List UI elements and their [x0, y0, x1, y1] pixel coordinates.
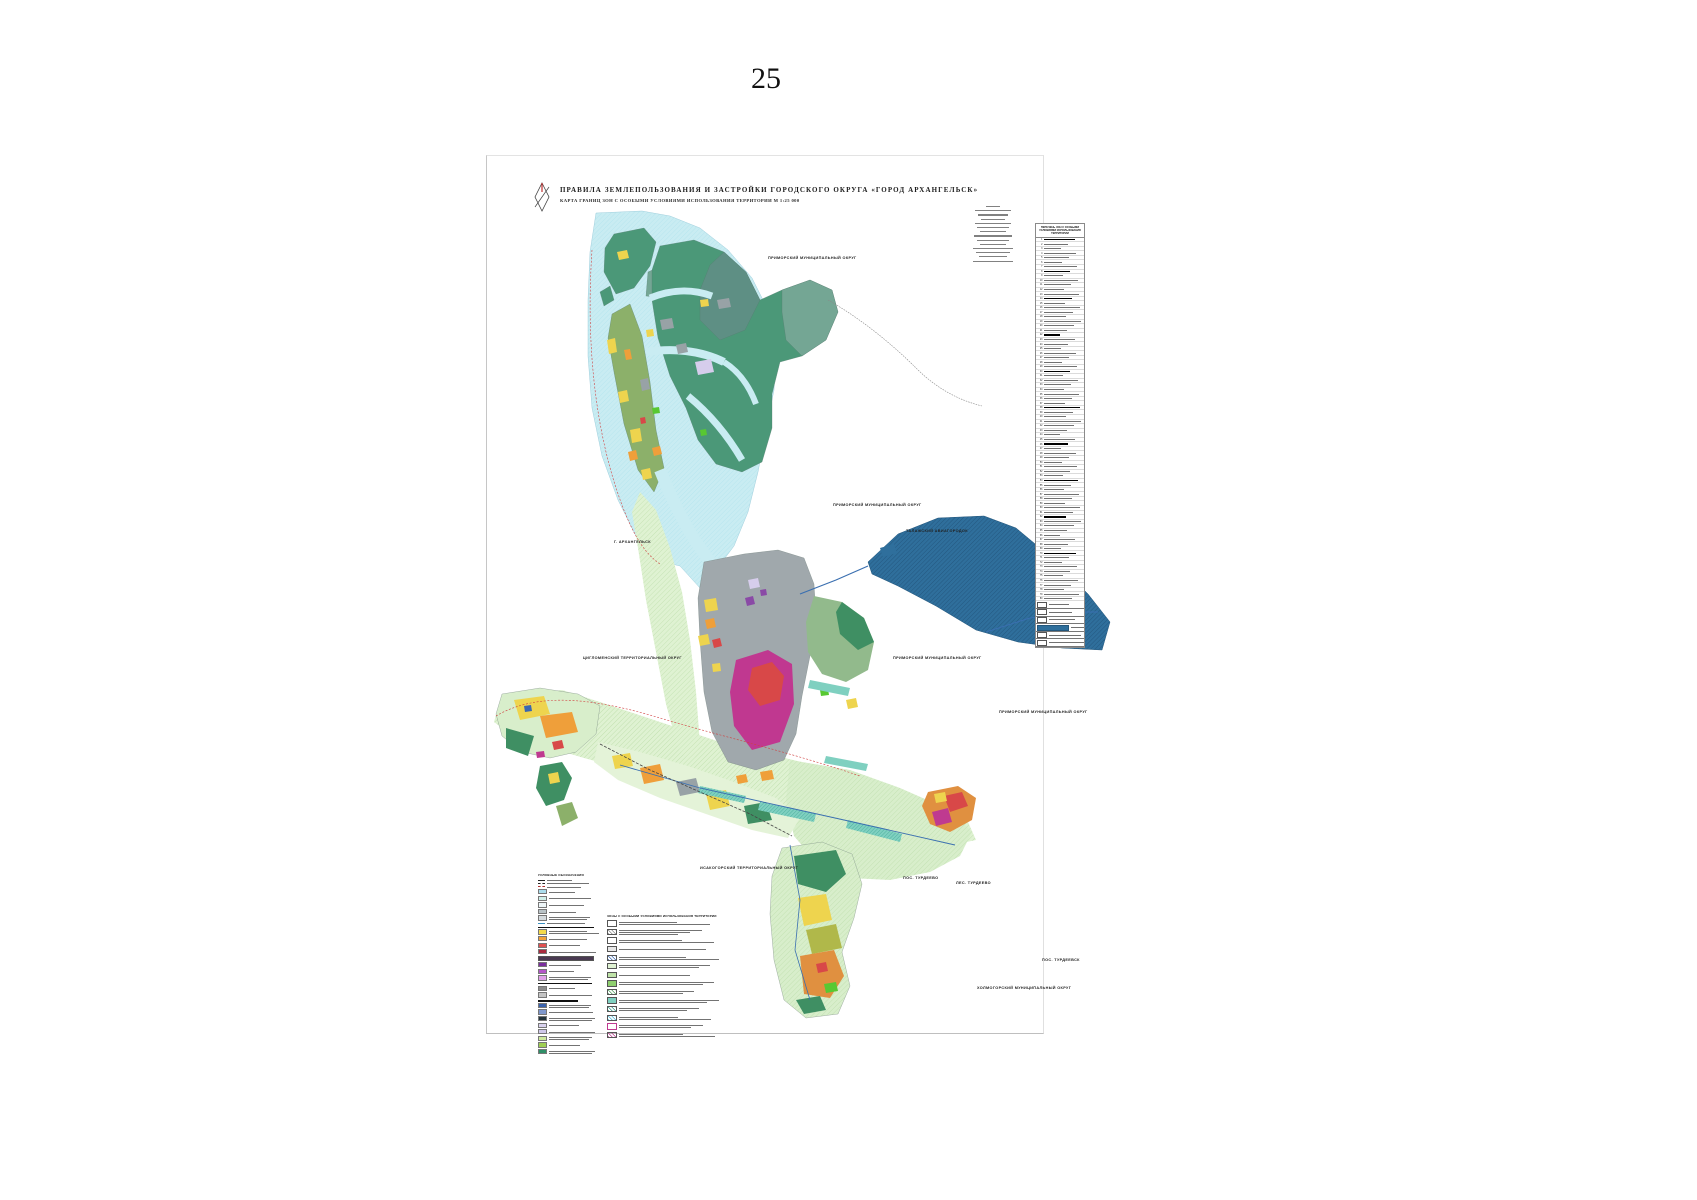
legend-label-lines [619, 921, 725, 925]
legend-label-lines [619, 974, 725, 976]
legend-symbol-box [607, 1006, 617, 1012]
zone-row-number: 65 [1037, 529, 1043, 532]
legend-swatch [538, 1009, 547, 1014]
legend-row [538, 886, 602, 888]
zone-row-text [1044, 330, 1067, 331]
zone-row-number: 59 [1037, 502, 1043, 505]
legend-row [538, 915, 602, 920]
legend-row [538, 922, 602, 924]
legend-row [538, 936, 602, 941]
north-compass-icon [533, 181, 551, 213]
legend-label-lines [549, 1031, 602, 1033]
legend-right-title: ЗОНЫ С ОСОБЫМИ УСЛОВИЯМИ ИСПОЛЬЗОВАНИЯ Т… [607, 914, 725, 918]
zone-row-text [1044, 439, 1075, 440]
zone-row-number: 19 [1037, 320, 1043, 323]
legend-text-line [549, 892, 575, 893]
zone-row-text [1044, 553, 1076, 554]
legend-row [538, 943, 602, 948]
legend-label-lines [549, 916, 602, 920]
notes-text-line [977, 240, 1009, 241]
zone-row-text [1044, 416, 1066, 417]
legend-text-line [547, 883, 590, 884]
zone-row-number: 33 [1037, 383, 1043, 386]
zone-row-number: 10 [1037, 279, 1043, 282]
notes-text-line [974, 235, 1012, 236]
zone-row-number: 25 [1037, 347, 1043, 350]
legend-label-lines [549, 970, 602, 972]
zone-row-text [1044, 512, 1073, 513]
legend-text-line [619, 922, 677, 923]
legend-text-line [619, 1034, 683, 1035]
zone-row-number: 41 [1037, 420, 1043, 423]
zone-row-number: 53 [1037, 474, 1043, 477]
legend-label-lines [549, 994, 602, 996]
zone-row-number: 64 [1037, 524, 1043, 527]
zone-row-text [1044, 498, 1072, 499]
zone-row-number: 67 [1037, 538, 1043, 541]
notes-text-line [986, 206, 1001, 207]
legend-text-line [549, 919, 587, 920]
zone-row-number: 2 [1037, 243, 1043, 246]
legend-row [538, 1029, 602, 1034]
zone-row-number: 9 [1037, 274, 1043, 277]
zone-row-number: 21 [1037, 329, 1043, 332]
zone-row-text [1044, 375, 1063, 376]
legend-row [607, 920, 725, 926]
legend-label-lines [549, 964, 602, 966]
legend-swatch [538, 949, 547, 954]
zone-row-number: 8 [1037, 270, 1043, 273]
zone-row-text [1044, 289, 1064, 290]
zone-list-title: ПЕРЕЧЕНЬ ЗОН С ОСОБЫМИ УСЛОВИЯМИ ИСПОЛЬЗ… [1036, 224, 1084, 238]
zone-row-text [1044, 280, 1078, 281]
legend-label-lines [549, 944, 602, 946]
legend-label-lines [619, 990, 725, 994]
zone-row-text [1044, 344, 1068, 345]
zone-row-text [1044, 585, 1071, 586]
legend-text-line [549, 1045, 581, 1046]
legend-swatch [538, 1042, 547, 1047]
zone-row-text [1044, 275, 1063, 276]
zone-row-text [1044, 521, 1081, 522]
legend-symbol-box [607, 972, 617, 978]
zone-row-symbol [1037, 617, 1047, 623]
zone-row-text [1049, 619, 1075, 620]
legend-label-lines [547, 922, 602, 924]
zone-row-text [1044, 384, 1071, 385]
legend-text-line [549, 1053, 593, 1054]
zone-row-number: 74 [1037, 570, 1043, 573]
legend-text-line [549, 931, 587, 932]
legend-text-line [549, 995, 592, 996]
legend-symbol-box [607, 989, 617, 995]
legend-swatch [538, 883, 545, 884]
notes-text-line [979, 256, 1007, 257]
zone-row-text [1044, 266, 1077, 267]
legend-swatch [538, 1023, 547, 1028]
legend-text-line [549, 905, 584, 906]
zone-row-text [1071, 627, 1085, 628]
zone-row-symbol [1037, 602, 1047, 608]
zone-row-number: 68 [1037, 543, 1043, 546]
zone-row-text [1044, 443, 1068, 444]
zone-row-number: 12 [1037, 288, 1043, 291]
zone-row-text [1044, 434, 1060, 435]
zone-row-number: 39 [1037, 411, 1043, 414]
zone-row-number: 47 [1037, 447, 1043, 450]
legend-text-line [619, 975, 690, 976]
legend-symbol-box [607, 1023, 617, 1029]
zone-row-text [1044, 398, 1072, 399]
legend-label-lines [549, 1050, 602, 1054]
legend-label-lines [619, 1033, 725, 1037]
legend-text-line [549, 1039, 590, 1040]
zone-row-text [1044, 389, 1064, 390]
zone-row-text [1044, 348, 1061, 349]
legend-row [607, 980, 725, 986]
legend-label-lines [619, 999, 725, 1003]
zone-row-number: 23 [1037, 338, 1043, 341]
legend-text-line [549, 939, 587, 940]
legend-text-line [619, 1002, 707, 1003]
legend-text-line [549, 1012, 594, 1013]
zone-row-number: 72 [1037, 561, 1043, 564]
zone-row-number: 35 [1037, 393, 1043, 396]
zone-row-text [1044, 535, 1060, 536]
zone-row-text [1044, 248, 1061, 249]
zone-row-number: 70 [1037, 552, 1043, 555]
legend-text-line [549, 898, 592, 899]
legend-label-lines [549, 897, 602, 899]
zone-row-text [1044, 530, 1067, 531]
legend-text-line [619, 959, 719, 960]
zone-row-number: 56 [1037, 488, 1043, 491]
legend-right-rows [607, 920, 725, 1038]
legend-label-lines [619, 964, 725, 968]
legend-row [607, 1015, 725, 1021]
zone-row-text [1044, 562, 1062, 563]
legend-label-lines [547, 882, 602, 884]
zone-row-number: 63 [1037, 520, 1043, 523]
legend-label-lines [549, 1024, 602, 1026]
legend-label-lines [549, 904, 602, 906]
zone-row-number: 50 [1037, 461, 1043, 464]
zone-row-number: 3 [1037, 247, 1043, 250]
legend-text-line [549, 917, 590, 918]
zone-row-text [1044, 594, 1079, 595]
legend-symbol-box [607, 997, 617, 1003]
zone-table-boxed-row [1036, 639, 1084, 647]
legend-restrictions-panel: ЗОНЫ С ОСОБЫМИ УСЛОВИЯМИ ИСПОЛЬЗОВАНИЯ Т… [607, 914, 725, 1038]
zone-row-number: 77 [1037, 584, 1043, 587]
legend-text-line [619, 1036, 715, 1037]
zone-row-text [1044, 294, 1079, 295]
zone-row-text [1044, 544, 1068, 545]
legend-text-line [619, 1027, 691, 1028]
legend-text-line [619, 991, 694, 992]
zone-row-text [1044, 503, 1065, 504]
zone-row-text [1044, 239, 1075, 240]
zone-row-text [1044, 598, 1072, 599]
zone-row-number: 51 [1037, 465, 1043, 468]
zone-row-text [1044, 253, 1076, 254]
zone-row-text [1044, 362, 1062, 363]
zone-row-text [1044, 353, 1076, 354]
zone-row-text [1049, 612, 1072, 613]
notes-text-line [973, 261, 1013, 262]
zone-row-text [1044, 507, 1080, 508]
legend-rows [538, 879, 602, 1054]
zone-row-text [1044, 557, 1069, 558]
legend-row [538, 1023, 602, 1028]
legend-text-line [547, 887, 582, 888]
legend-row [538, 1016, 602, 1021]
legend-symbol-box [607, 1015, 617, 1021]
zone-row-number: 15 [1037, 302, 1043, 305]
zone-row-number: 75 [1037, 574, 1043, 577]
zone-row-number: 57 [1037, 493, 1043, 496]
legend-swatch [538, 936, 547, 941]
zone-row-text [1049, 642, 1084, 643]
zone-row-text [1044, 271, 1070, 272]
legend-row [538, 896, 602, 901]
legend-text-line [619, 993, 683, 994]
zone-row-number: 37 [1037, 402, 1043, 405]
zone-row-text [1044, 316, 1066, 317]
zone-row-text [1044, 462, 1062, 463]
legend-title: УСЛОВНЫЕ ОБОЗНАЧЕНИЯ [538, 873, 602, 877]
zone-row-number: 38 [1037, 406, 1043, 409]
zone-row-number: 45 [1037, 438, 1043, 441]
zone-row-text [1044, 471, 1070, 472]
zone-row-number: 79 [1037, 593, 1043, 596]
zone-row-number: 30 [1037, 370, 1043, 373]
zone-row-text [1044, 257, 1069, 258]
zone-row-number: 18 [1037, 315, 1043, 318]
legend-swatch [538, 889, 547, 894]
zone-row-number: 4 [1037, 252, 1043, 255]
legend-text-line [549, 1051, 595, 1052]
legend-symbol-box [607, 955, 617, 961]
zone-row-number: 29 [1037, 365, 1043, 368]
zone-row-number: 32 [1037, 379, 1043, 382]
zone-table-boxed-row [1036, 632, 1084, 640]
legend-symbol-box [607, 980, 617, 986]
zone-row-text [1044, 485, 1071, 486]
notes-text-line [981, 219, 1005, 220]
zone-row-text [1044, 334, 1060, 335]
legend-text-line [549, 971, 574, 972]
legend-label-lines [619, 948, 725, 950]
zone-row-text [1044, 489, 1064, 490]
legend-row [607, 955, 725, 961]
zone-row-number: 27 [1037, 356, 1043, 359]
legend-text-line [549, 933, 600, 934]
legend-label-lines [549, 1044, 602, 1046]
legend-section-title [538, 983, 592, 984]
zone-row-text [1044, 298, 1072, 299]
legend-swatch [538, 1016, 547, 1021]
zone-row-text [1044, 525, 1074, 526]
zone-row-text [1044, 457, 1069, 458]
legend-text-line [619, 965, 710, 966]
legend-swatch [538, 923, 545, 924]
legend-label-lines [619, 939, 725, 943]
legend-swatch [538, 896, 547, 901]
zone-row-text [1044, 339, 1075, 340]
legend-text-line [619, 967, 699, 968]
zone-row-number: 48 [1037, 452, 1043, 455]
legend-text-line [549, 1018, 595, 1019]
legend-text-line [619, 1019, 711, 1020]
zone-row-number: 55 [1037, 484, 1043, 487]
zone-list-panel: ПЕРЕЧЕНЬ ЗОН С ОСОБЫМИ УСЛОВИЯМИ ИСПОЛЬЗ… [1035, 223, 1085, 648]
zone-row-text [1044, 262, 1062, 263]
legend-row [538, 929, 602, 934]
zone-row-number: 17 [1037, 311, 1043, 314]
zone-table-boxed-row [1036, 617, 1084, 625]
legend-swatch [538, 1029, 547, 1034]
zone-row-number: 28 [1037, 361, 1043, 364]
legend-swatch [538, 1049, 547, 1054]
legend-row [607, 989, 725, 995]
zone-row-number: 11 [1037, 283, 1043, 286]
zone-row-text [1044, 566, 1077, 567]
legend-row [607, 1032, 725, 1038]
legend-text-line [549, 977, 591, 978]
zone-row-text [1044, 321, 1081, 322]
legend-row [607, 997, 725, 1003]
legend-swatch [538, 902, 547, 907]
zone-row-number: 16 [1037, 306, 1043, 309]
legend-text-line [549, 1032, 595, 1033]
zone-list-rows: 1234567891011121314151617181920212223242… [1036, 238, 1084, 647]
zone-row-symbol [1037, 640, 1047, 646]
zone-row-number: 24 [1037, 343, 1043, 346]
legend-text-line [619, 1000, 719, 1001]
legend-label-lines [549, 951, 602, 953]
legend-swatch [538, 1036, 547, 1041]
legend-text-line [619, 949, 706, 950]
zone-row-text [1044, 380, 1078, 381]
zone-row-number: 62 [1037, 515, 1043, 518]
zone-row-number: 7 [1037, 265, 1043, 268]
map-title-block: ПРАВИЛА ЗЕМЛЕПОЛЬЗОВАНИЯ И ЗАСТРОЙКИ ГОР… [560, 186, 1030, 203]
zone-row-text [1044, 303, 1065, 304]
zone-row-text [1044, 430, 1067, 431]
legend-swatch [538, 992, 547, 997]
zone-table-boxed-row [1036, 601, 1084, 609]
legend-label-lines [619, 1024, 725, 1028]
zone-row-text [1044, 475, 1063, 476]
legend-text-line [619, 930, 702, 931]
legend-row [538, 969, 602, 974]
legend-row [538, 1000, 602, 1001]
zone-row-symbol [1037, 609, 1047, 615]
zone-row-number: 73 [1037, 565, 1043, 568]
zone-row-text [1044, 325, 1074, 326]
legend-row [538, 882, 602, 884]
zone-row-number: 6 [1037, 261, 1043, 264]
zone-row-text [1044, 466, 1077, 467]
zone-row-number: 58 [1037, 497, 1043, 500]
notes-text-line [980, 231, 1006, 232]
legend-label-lines [549, 891, 602, 893]
zone-row-text [1044, 575, 1063, 576]
zone-row-number: 14 [1037, 297, 1043, 300]
zone-row-number: 78 [1037, 588, 1043, 591]
zone-row-number: 13 [1037, 293, 1043, 296]
zone-row-text [1044, 453, 1076, 454]
legend-row [607, 1023, 725, 1029]
zone-table-boxed-row [1036, 624, 1084, 632]
zone-row-number: 54 [1037, 479, 1043, 482]
zone-row-number: 60 [1037, 506, 1043, 509]
legend-row [538, 1042, 602, 1047]
zone-row-number: 20 [1037, 324, 1043, 327]
notes-text-line [980, 244, 1007, 245]
legend-row [538, 986, 602, 991]
legend-text-line [619, 1008, 699, 1009]
legend-row [538, 962, 602, 967]
zone-row-text [1049, 635, 1081, 636]
legend-label-lines [549, 1004, 602, 1008]
zone-row-number: 22 [1037, 333, 1043, 336]
notes-text-line [977, 227, 1008, 228]
legend-label-lines [549, 911, 602, 913]
legend-symbol-box [607, 946, 617, 952]
zone-row-text [1044, 412, 1073, 413]
zone-row-number: 66 [1037, 534, 1043, 537]
legend-row [538, 1036, 602, 1041]
legend-symbol-box [607, 920, 617, 926]
zone-table-boxed-row [1036, 609, 1084, 617]
legend-label-lines [619, 956, 725, 960]
legend-symbol-box [607, 1032, 617, 1038]
legend-row [538, 909, 602, 914]
zone-row-text [1044, 494, 1079, 495]
zone-row-text [1044, 580, 1078, 581]
legend-text-line [547, 880, 572, 881]
zone-row-text [1044, 307, 1080, 308]
legend-label-lines [619, 929, 725, 935]
legend-swatch [538, 880, 545, 881]
zone-row-text [1044, 516, 1066, 517]
legend-text-line [619, 984, 703, 985]
zone-row-text [1044, 421, 1081, 422]
zone-row-text [1044, 425, 1074, 426]
zone-row-text [1044, 571, 1070, 572]
legend-symbol-box [607, 937, 617, 943]
zone-row-number: 76 [1037, 579, 1043, 582]
legend-text-line [619, 932, 690, 933]
legend-row [538, 902, 602, 907]
legend-section-title [538, 1000, 578, 1001]
legend-text-line [547, 923, 585, 924]
zone-row-number: 43 [1037, 429, 1043, 432]
zone-row-number: 69 [1037, 547, 1043, 550]
legend-row [538, 1009, 602, 1014]
legend-label-lines [619, 1016, 725, 1020]
legend-swatch [538, 943, 547, 948]
legend-swatch [538, 886, 545, 887]
zone-row-number: 26 [1037, 352, 1043, 355]
zone-row-number: 49 [1037, 456, 1043, 459]
notes-block [972, 203, 1014, 262]
legend-text-line [549, 965, 582, 966]
zone-row-text [1044, 403, 1065, 404]
zone-row-symbol [1037, 625, 1069, 631]
